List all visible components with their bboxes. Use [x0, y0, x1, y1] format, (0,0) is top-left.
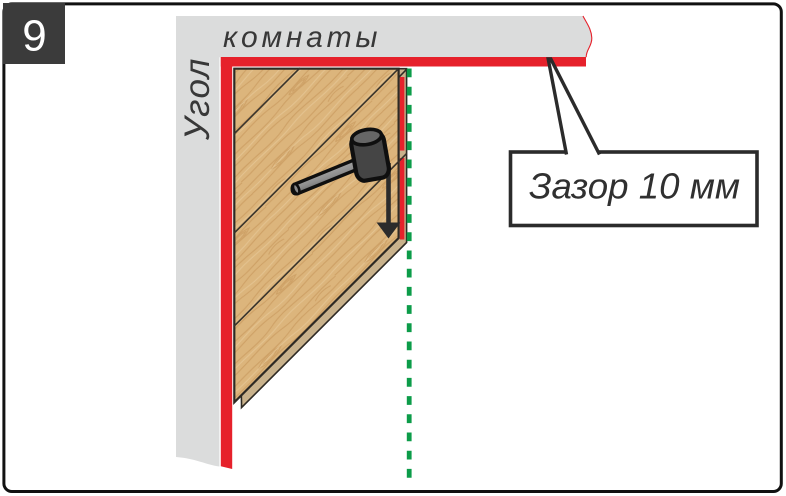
svg-text:Зазор 10 мм: Зазор 10 мм	[529, 166, 740, 207]
svg-text:Угол: Угол	[178, 57, 217, 141]
svg-text:комнаты: комнаты	[223, 21, 381, 54]
svg-text:9: 9	[22, 12, 46, 61]
